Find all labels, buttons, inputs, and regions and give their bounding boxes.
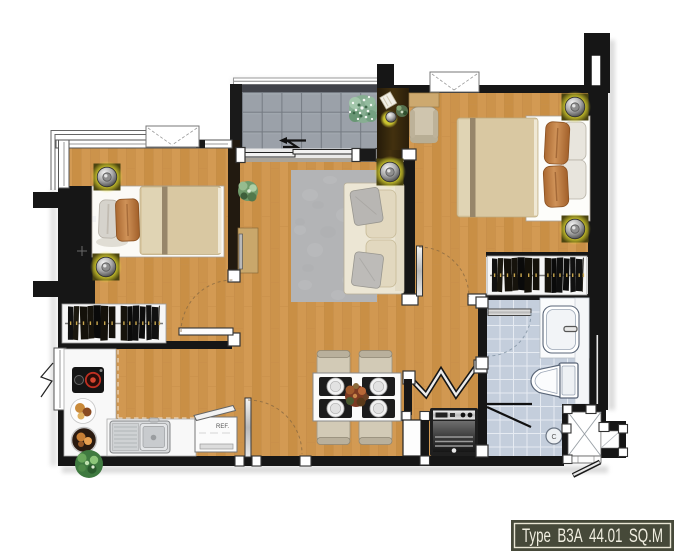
svg-text:Type B3A 44.01 SQ.M: Type B3A 44.01 SQ.M [522,526,663,547]
svg-text:C: C [551,434,556,441]
svg-text:REF.: REF. [216,424,229,430]
